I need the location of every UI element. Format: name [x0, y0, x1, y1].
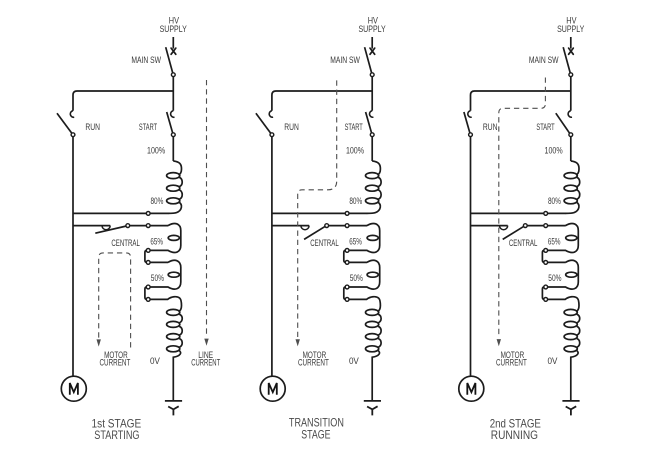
svg-text:SUPPLY: SUPPLY [359, 24, 386, 34]
svg-text:RUN: RUN [284, 122, 299, 132]
svg-text:CENTRAL: CENTRAL [509, 238, 538, 248]
svg-text:CENTRAL: CENTRAL [310, 238, 339, 248]
svg-text:100%: 100% [147, 146, 165, 156]
svg-text:100%: 100% [545, 146, 563, 156]
svg-text:RUNNING: RUNNING [491, 429, 538, 442]
svg-text:CENTRAL: CENTRAL [111, 238, 140, 248]
svg-text:SUPPLY: SUPPLY [160, 24, 187, 34]
svg-text:0V: 0V [349, 356, 359, 366]
svg-text:100%: 100% [346, 146, 364, 156]
svg-text:65%: 65% [349, 236, 362, 246]
svg-text:80%: 80% [548, 196, 561, 206]
svg-text:0V: 0V [548, 356, 558, 366]
svg-text:CURRENT: CURRENT [496, 357, 527, 367]
svg-text:RUN: RUN [85, 122, 100, 132]
svg-text:STARTING: STARTING [94, 429, 139, 442]
svg-text:START: START [139, 122, 158, 132]
svg-text:START: START [345, 122, 364, 132]
svg-text:50%: 50% [548, 273, 561, 283]
svg-text:50%: 50% [151, 273, 164, 283]
svg-text:65%: 65% [548, 236, 561, 246]
svg-text:CURRENT: CURRENT [191, 357, 220, 367]
svg-text:START: START [536, 122, 555, 132]
svg-text:65%: 65% [150, 236, 163, 246]
svg-text:RUN: RUN [483, 122, 498, 132]
svg-text:STAGE: STAGE [301, 429, 330, 442]
svg-text:SUPPLY: SUPPLY [557, 24, 584, 34]
svg-text:CURRENT: CURRENT [100, 357, 131, 367]
svg-text:MAIN SW: MAIN SW [330, 55, 360, 65]
svg-text:MAIN SW: MAIN SW [529, 55, 559, 65]
svg-text:80%: 80% [349, 196, 362, 206]
svg-text:80%: 80% [150, 196, 163, 206]
svg-text:MAIN SW: MAIN SW [131, 55, 161, 65]
svg-text:CURRENT: CURRENT [298, 357, 329, 367]
svg-text:0V: 0V [150, 356, 160, 366]
svg-text:50%: 50% [350, 273, 363, 283]
